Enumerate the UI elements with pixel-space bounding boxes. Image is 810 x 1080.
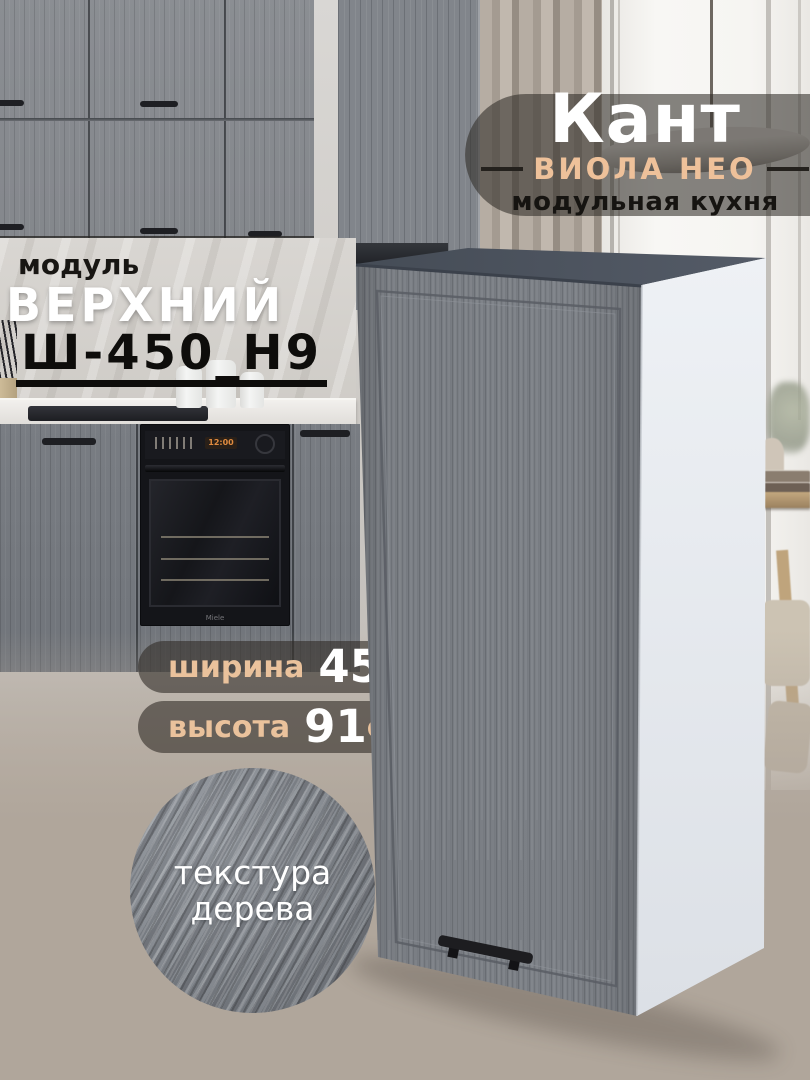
cabinet-drop-shadow xyxy=(344,937,785,1079)
oven-control-icons xyxy=(155,437,193,449)
spec-value: 91 xyxy=(304,701,367,753)
spec-unit: см xyxy=(367,710,409,745)
oven-display: 12:00 xyxy=(205,437,237,449)
oven-glass-door xyxy=(149,479,281,607)
module-name: ВЕРХНИЙ xyxy=(6,281,327,329)
door-seam xyxy=(224,0,226,242)
brand-series-row: ВИОЛА НЕО xyxy=(481,152,808,186)
cabinet-handle xyxy=(0,224,24,230)
vase xyxy=(760,438,784,472)
cabinet-handle xyxy=(0,100,24,106)
cabinet-handle xyxy=(140,228,178,234)
brand-series: ВИОЛА НЕО xyxy=(533,152,756,186)
cabinet-handle xyxy=(300,430,350,437)
module-eyebrow: модуль xyxy=(18,248,327,281)
table-top xyxy=(750,492,810,508)
brand-tagline: модульная кухня xyxy=(511,187,778,217)
spec-height-pill: высота 91 см xyxy=(138,701,430,753)
cabinet-handle xyxy=(140,101,178,107)
module-block: модуль ВЕРХНИЙ Ш-450_Н9 xyxy=(6,248,327,387)
texture-swatch-circle: текстура дерева xyxy=(130,768,375,1013)
brand-title: Кант xyxy=(549,89,741,150)
door-handle xyxy=(436,935,534,974)
texture-label-line1: текстура xyxy=(174,855,332,891)
oven-rack xyxy=(161,579,269,581)
oven-knob xyxy=(255,434,275,454)
series-dash xyxy=(481,167,523,171)
series-dash xyxy=(767,167,809,171)
brand-banner: Кант ВИОЛА НЕО модульная кухня xyxy=(465,94,810,216)
door-seam xyxy=(0,118,314,121)
spec-label: ширина xyxy=(168,650,304,685)
upper-cabinets xyxy=(0,0,314,242)
spec-width-pill: ширина 45 см xyxy=(138,641,430,693)
tall-cabinet-glass-band xyxy=(340,243,448,265)
spec-unit: см xyxy=(381,650,423,685)
oven: 12:00 Miele xyxy=(140,424,290,626)
spec-label: высота xyxy=(168,710,290,745)
oven-rack xyxy=(161,536,269,538)
oven-rack xyxy=(161,558,269,560)
module-code: Ш-450_Н9 xyxy=(16,329,327,387)
product-card: 12:00 Miele Кант ВИОЛА НЕО xyxy=(0,0,810,1080)
texture-label-line2: дерева xyxy=(190,891,314,927)
door-seam xyxy=(88,0,90,242)
cooktop xyxy=(28,406,208,421)
oven-handle xyxy=(145,465,285,472)
spec-value: 45 xyxy=(318,641,381,693)
cabinet-handle xyxy=(42,438,96,445)
oven-brand-label: Miele xyxy=(141,614,289,622)
